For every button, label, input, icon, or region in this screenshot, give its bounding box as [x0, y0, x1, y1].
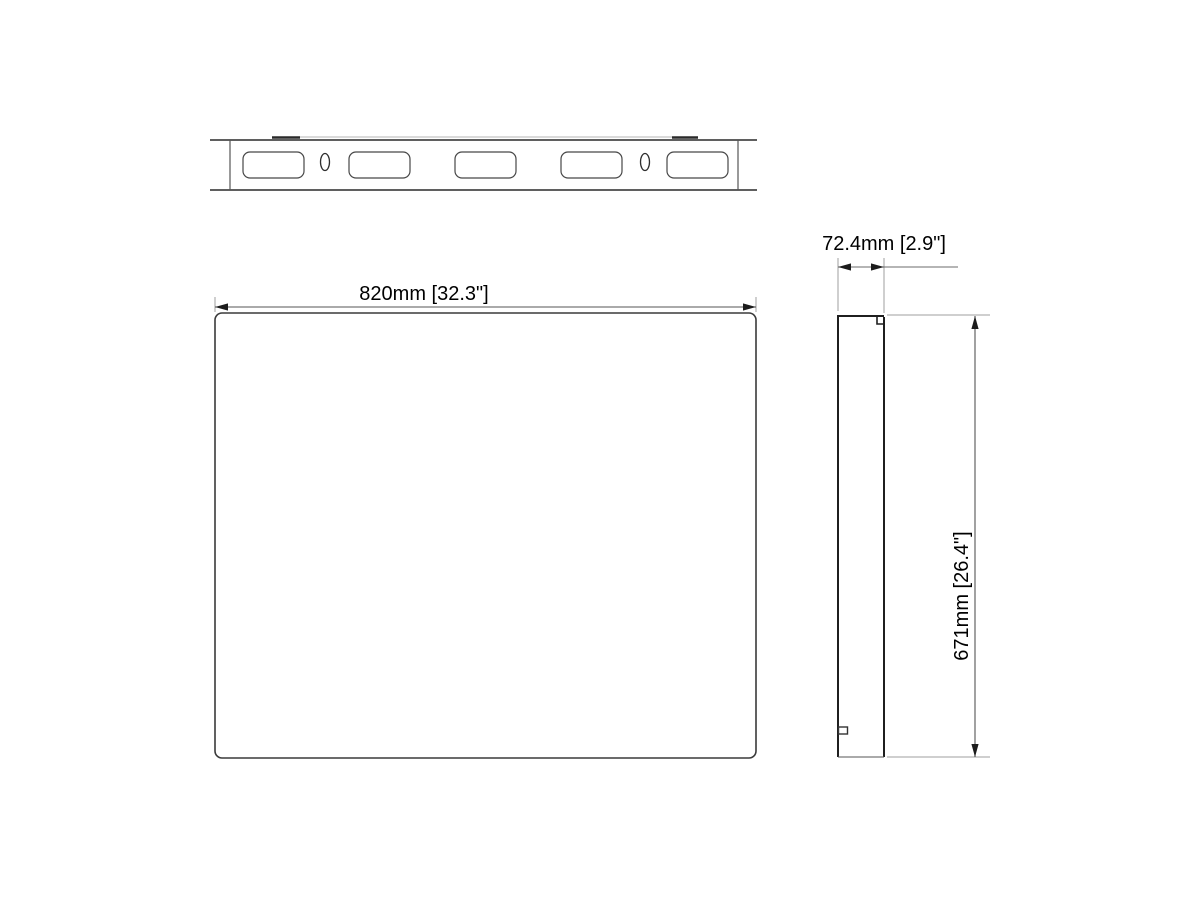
- side-view-top-hook: [877, 317, 884, 324]
- height-arrow-top: [971, 316, 978, 329]
- depth-dimension-label: 72.4mm [2.9"]: [822, 233, 946, 255]
- front-view-plate-outline: [215, 313, 756, 758]
- side-view: 72.4mm [2.9"] 671mm [26.4"]: [822, 233, 990, 757]
- top-view-holes: [321, 154, 650, 171]
- width-arrow-left: [215, 303, 228, 310]
- top-view: [210, 137, 757, 190]
- pin-hole: [641, 154, 650, 171]
- three-view-drawing: 820mm [32.3"] 72.4mm [2.9"] 671mm [26.4"…: [0, 0, 1200, 900]
- mounting-slot: [561, 152, 622, 178]
- width-dimension-label: 820mm [32.3"]: [359, 283, 488, 305]
- height-arrow-bottom: [971, 744, 978, 757]
- mounting-slot: [349, 152, 410, 178]
- front-view: 820mm [32.3"]: [215, 283, 756, 758]
- drawing-canvas: 820mm [32.3"] 72.4mm [2.9"] 671mm [26.4"…: [0, 0, 1200, 900]
- depth-arrow-right: [871, 263, 884, 270]
- height-dimension: 671mm [26.4"]: [887, 315, 990, 757]
- side-view-bottom-tab: [839, 727, 848, 734]
- mounting-slot: [243, 152, 304, 178]
- width-dimension: 820mm [32.3"]: [215, 283, 756, 312]
- depth-dimension: 72.4mm [2.9"]: [822, 233, 958, 313]
- width-arrow-right: [743, 303, 756, 310]
- mounting-slot: [455, 152, 516, 178]
- top-view-slots: [243, 152, 728, 178]
- height-dimension-label: 671mm [26.4"]: [951, 531, 973, 660]
- pin-hole: [321, 154, 330, 171]
- mounting-slot: [667, 152, 728, 178]
- depth-arrow-left: [838, 263, 851, 270]
